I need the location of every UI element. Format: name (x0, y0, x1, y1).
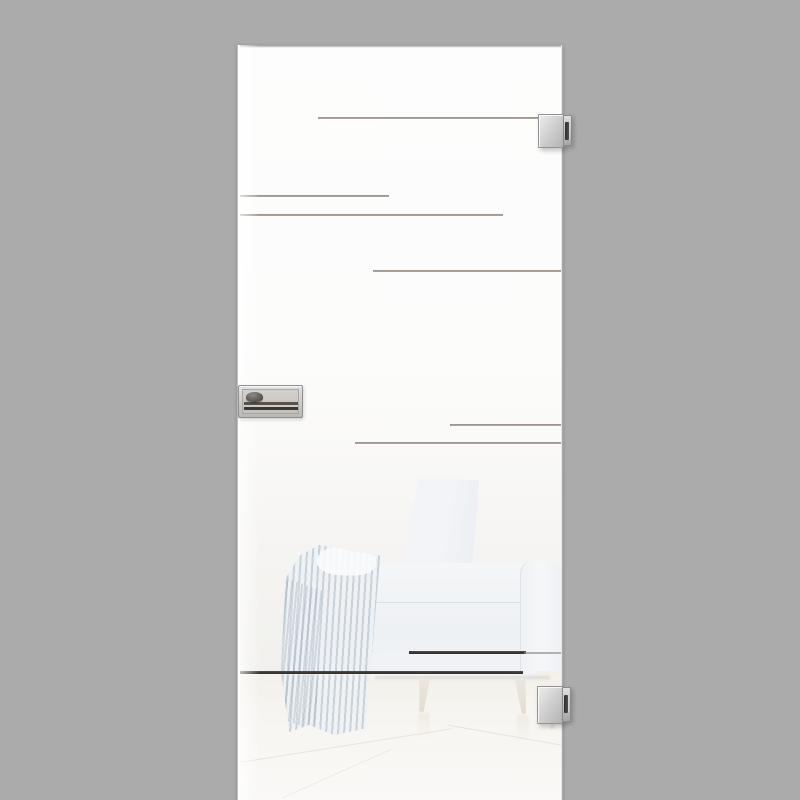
glass-etched-line (450, 424, 563, 426)
glass-etched-line (524, 652, 562, 654)
glass-etched-line (409, 651, 526, 654)
top-hinge (538, 114, 573, 148)
hinge-slot (564, 695, 569, 713)
bottom-hinge (537, 686, 572, 724)
glass-etched-line (373, 270, 563, 272)
throw-blanket-reflection (278, 544, 381, 737)
glass-sheen (240, 45, 260, 800)
leg-floor-reflection (418, 713, 430, 741)
hinge-plate (538, 114, 564, 148)
room-reflection (237, 45, 563, 800)
glass-etched-line (238, 214, 503, 216)
glass-etched-line (318, 117, 540, 119)
glass-etched-line (238, 671, 523, 674)
armchair-armrest-reflection (520, 561, 563, 671)
armchair-cushion-seam (373, 602, 533, 603)
lock-plate (238, 385, 303, 418)
hinge-plate (537, 686, 563, 724)
glass-door-panel (237, 45, 563, 800)
glass-etched-line (355, 442, 563, 444)
leg-floor-reflection (517, 715, 529, 743)
lock-turn-lever (246, 392, 263, 402)
armchair-seat-reflection (370, 563, 536, 677)
door-top-edge (237, 45, 563, 48)
lock-slot-bar (244, 407, 298, 410)
glass-etched-line (238, 195, 389, 197)
hinge-slot (565, 122, 570, 140)
product-photo-stage (0, 0, 800, 800)
